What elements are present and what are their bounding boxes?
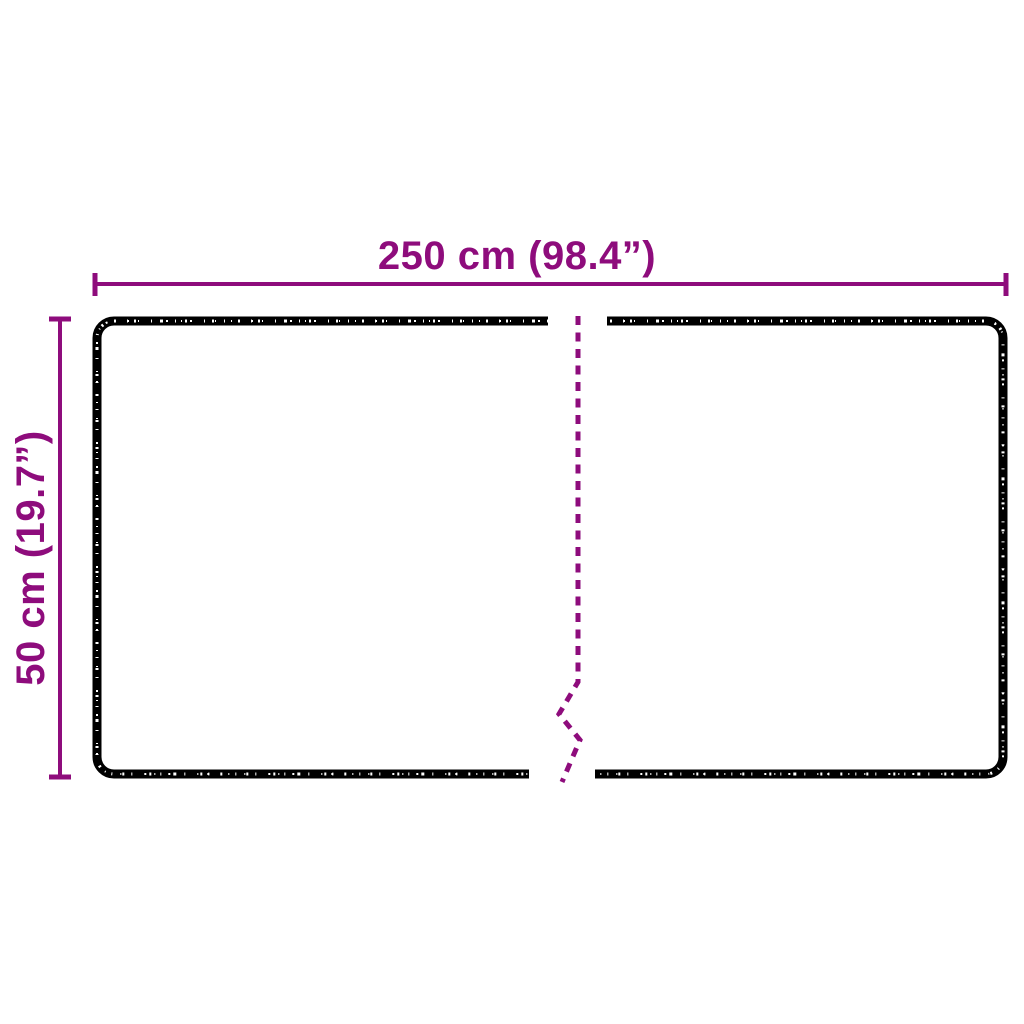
tarp-border-texture [97, 321, 1003, 774]
length-break-line [559, 316, 580, 782]
tarp-outline [97, 321, 1003, 774]
diagram-drawing [0, 0, 1024, 1024]
height-dimension-label: 50 cm (19.7”) [11, 430, 51, 686]
product-dimension-diagram: 250 cm (98.4”) 50 cm (19.7”) [0, 0, 1024, 1024]
tarp-border-texture-2 [97, 321, 1003, 774]
width-dimension-label: 250 cm (98.4”) [378, 236, 656, 276]
